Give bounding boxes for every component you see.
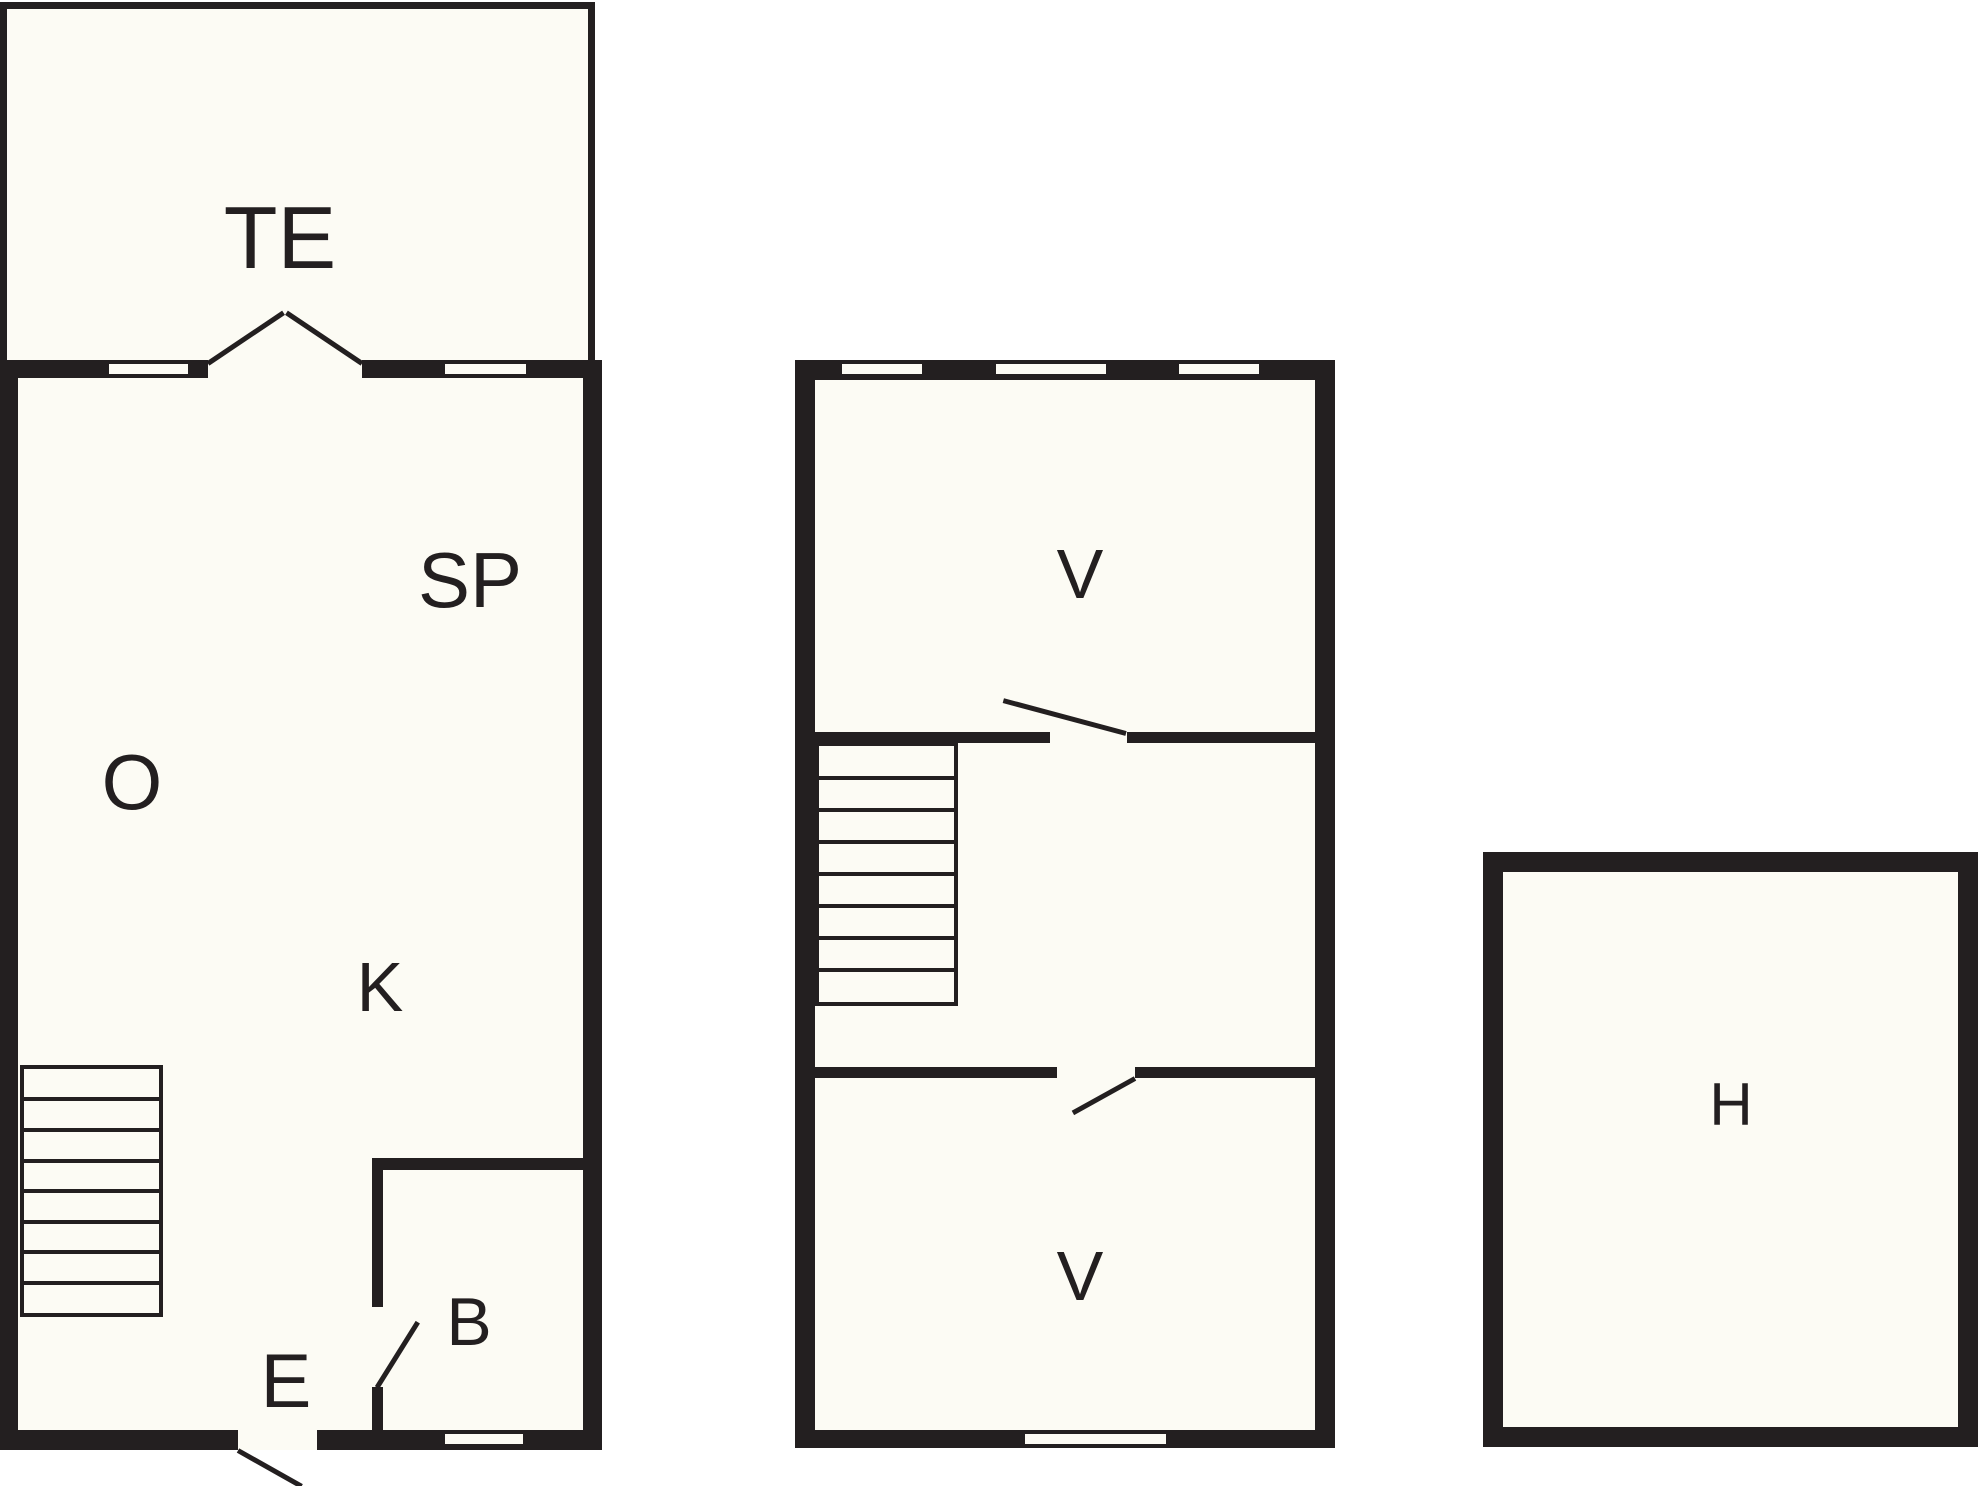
stair-tread	[24, 1220, 159, 1224]
stair-tread	[24, 1097, 159, 1101]
room-label-kitchen: K	[357, 952, 404, 1022]
room-label-entrance: E	[261, 1344, 312, 1420]
window	[994, 362, 1108, 376]
stair-tread	[24, 1159, 159, 1163]
stair-tread	[819, 840, 954, 844]
terrace-wall-left	[0, 2, 7, 360]
stair-tread	[819, 968, 954, 972]
bathroom-wall-top	[372, 1158, 583, 1170]
stair-tread	[24, 1250, 159, 1254]
room-label-sleeping: SP	[418, 541, 522, 619]
room-label-bathroom: B	[446, 1288, 491, 1356]
window	[107, 362, 190, 376]
terrace-wall-top	[0, 2, 595, 9]
outbuilding-wall-left	[1483, 852, 1503, 1447]
staircase	[815, 742, 958, 1006]
window	[840, 362, 924, 376]
bathroom-wall-left-upper	[372, 1158, 383, 1307]
floor-plan: TE	[0, 0, 1980, 1486]
stair-tread	[24, 1281, 159, 1285]
stair-tread	[819, 808, 954, 812]
terrace-floor	[0, 2, 595, 360]
door-swing	[237, 1448, 303, 1486]
outbuilding-wall-top	[1483, 852, 1978, 872]
room-label-shed: H	[1709, 1075, 1752, 1135]
outbuilding-wall-bottom	[1483, 1427, 1978, 1447]
room-label-living: O	[102, 743, 163, 821]
main-wall-right	[583, 360, 602, 1450]
window	[443, 1432, 525, 1446]
window	[443, 362, 528, 376]
window	[1023, 1432, 1168, 1446]
door-opening	[1057, 1067, 1135, 1078]
stair-tread	[24, 1189, 159, 1193]
annex-wall-right	[1315, 360, 1335, 1448]
annex-wall-left	[795, 360, 815, 1448]
stair-tread	[819, 936, 954, 940]
stair-tread	[819, 776, 954, 780]
room-label-bedroom-upper: V	[1057, 539, 1104, 609]
outbuilding-floor	[1483, 852, 1978, 1447]
stair-tread	[819, 904, 954, 908]
bathroom-wall-left-stub	[372, 1387, 383, 1430]
window	[1177, 362, 1261, 376]
door-opening	[1050, 732, 1127, 743]
stair-tread	[24, 1128, 159, 1132]
terrace-wall-right	[588, 2, 595, 360]
terrace-door-opening	[208, 360, 362, 378]
main-wall-left	[0, 360, 18, 1450]
entrance-door-opening	[238, 1430, 317, 1450]
staircase	[20, 1065, 163, 1317]
stair-tread	[819, 872, 954, 876]
room-label-bedroom-lower: V	[1057, 1241, 1104, 1311]
room-label-terrace: TE	[224, 194, 336, 282]
outbuilding-wall-right	[1958, 852, 1978, 1447]
